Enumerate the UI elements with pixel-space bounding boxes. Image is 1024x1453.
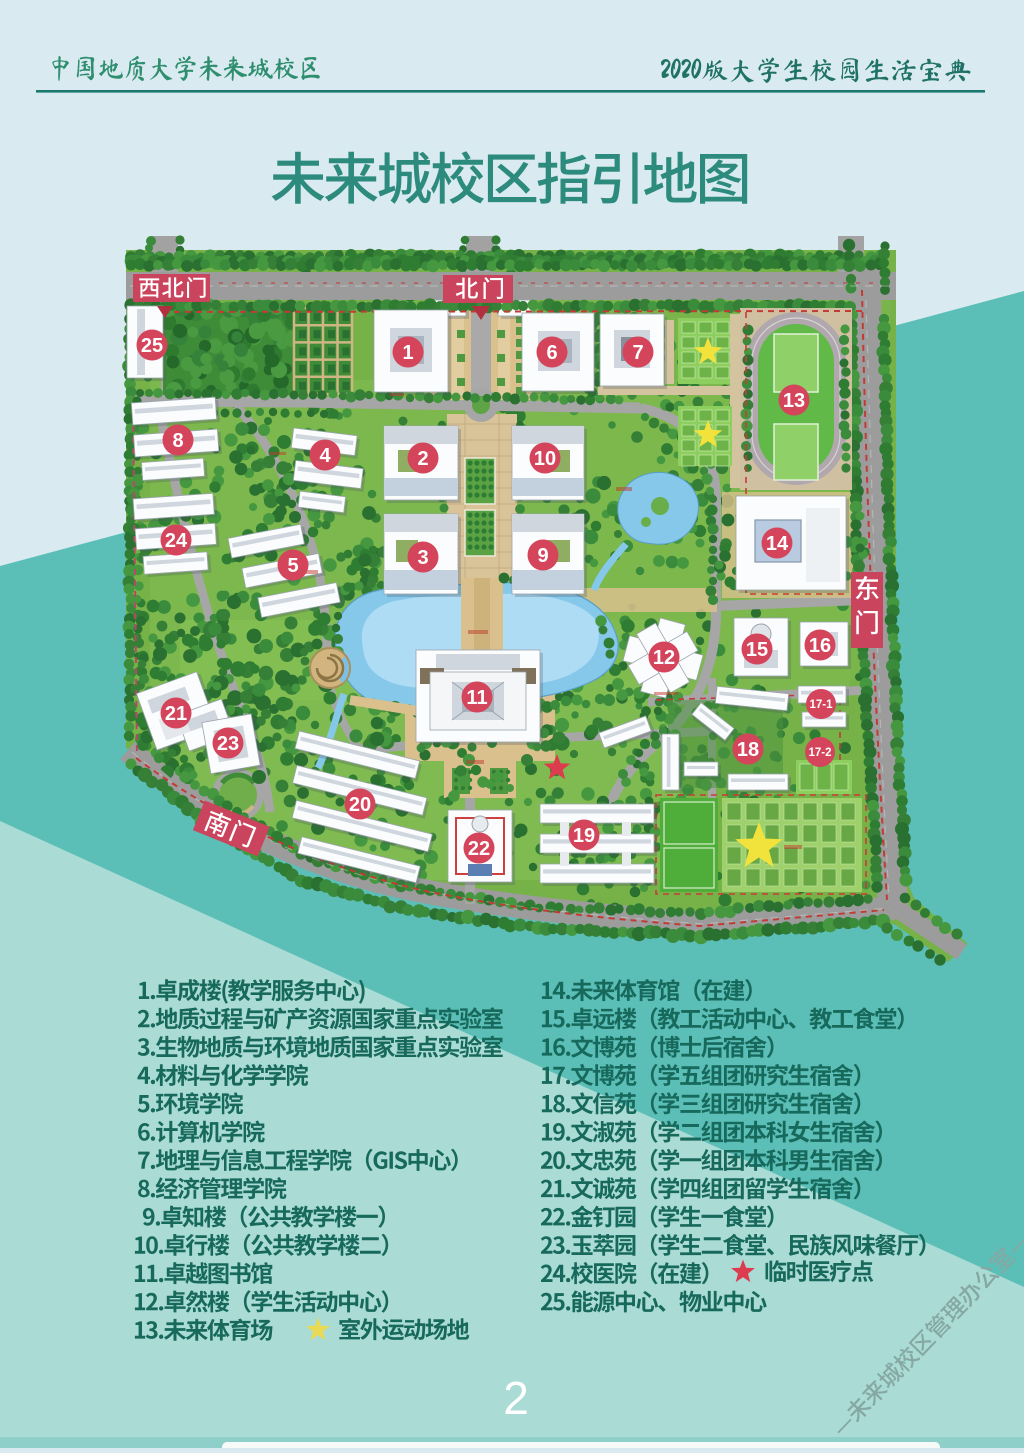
svg-text:25: 25 xyxy=(141,335,163,357)
svg-text:23: 23 xyxy=(217,733,239,755)
svg-text:10: 10 xyxy=(534,448,556,470)
svg-text:24: 24 xyxy=(165,530,188,552)
svg-text:5: 5 xyxy=(287,555,298,577)
svg-text:18: 18 xyxy=(737,739,759,761)
svg-text:19: 19 xyxy=(573,825,595,847)
svg-text:9: 9 xyxy=(537,545,548,567)
svg-text:15: 15 xyxy=(746,639,768,661)
svg-text:17-1: 17-1 xyxy=(809,699,833,711)
svg-text:6: 6 xyxy=(546,342,557,364)
svg-text:16: 16 xyxy=(809,635,831,657)
svg-text:11: 11 xyxy=(466,687,487,709)
svg-text:2: 2 xyxy=(503,1372,529,1424)
svg-text:13: 13 xyxy=(783,390,805,412)
svg-text:8: 8 xyxy=(172,430,183,452)
svg-text:14: 14 xyxy=(766,533,789,555)
svg-text:17-2: 17-2 xyxy=(808,747,831,759)
svg-text:1: 1 xyxy=(402,342,413,364)
svg-text:20: 20 xyxy=(349,794,371,816)
svg-text:3: 3 xyxy=(417,547,428,569)
svg-text:22: 22 xyxy=(468,838,490,860)
svg-text:7: 7 xyxy=(632,342,643,364)
svg-text:4: 4 xyxy=(319,445,331,467)
svg-text:21: 21 xyxy=(165,703,187,725)
svg-text:2: 2 xyxy=(417,448,428,470)
svg-text:12: 12 xyxy=(653,647,675,669)
